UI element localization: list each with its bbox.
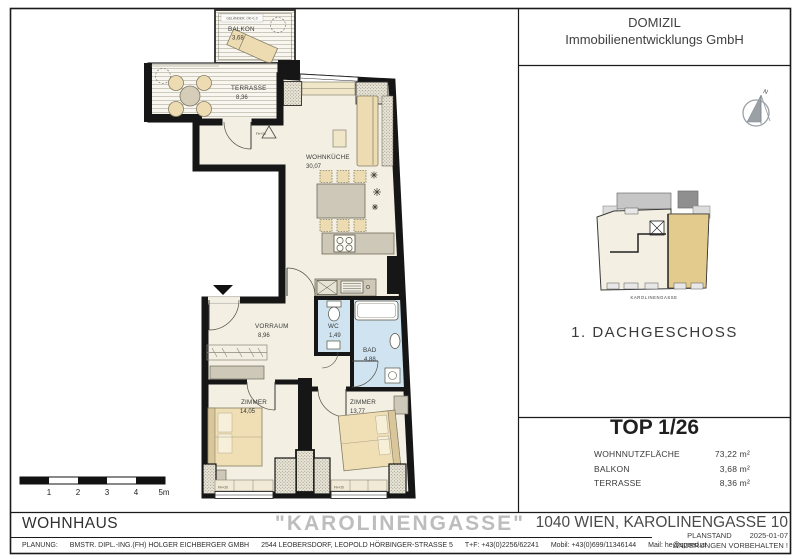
- unit-row-wohnnutzflaeche: WOHNNUTZFLÄCHE 73,22 m²: [594, 449, 750, 459]
- sideboard: [210, 366, 264, 379]
- toilet: [329, 307, 340, 321]
- unit-summary-table: WOHNNUTZFLÄCHE 73,22 m² BALKON 3,68 m² T…: [594, 449, 750, 493]
- unit-row-value: 3,68 m²: [720, 464, 750, 474]
- bed: [338, 410, 400, 471]
- scale-tick-3: 3: [105, 488, 110, 497]
- building-type: WOHNHAUS: [22, 515, 118, 533]
- scale-tick-1: 1: [47, 488, 52, 497]
- unit-row-value: 8,36 m²: [720, 478, 750, 488]
- sofa: [357, 96, 378, 166]
- highlighted-unit: [668, 214, 709, 288]
- scale-bar: 1 2 3 4 5m: [20, 477, 170, 497]
- unit-row-label: WOHNNUTZFLÄCHE: [594, 449, 680, 459]
- kitchen-island: [322, 233, 394, 254]
- room-area-wohnkueche: 30,07: [306, 164, 322, 170]
- bathroom: BAD 4,88: [352, 298, 406, 389]
- sink-counter: [315, 279, 376, 296]
- unit-row-value: 73,22 m²: [715, 449, 750, 459]
- plan-status-label: PLANSTAND: [687, 531, 731, 540]
- room-label-zimmer-1: ZIMMER: [241, 399, 267, 406]
- window-label-1: FH+20: [256, 132, 266, 136]
- overview-site-plan: KAROLINENGASSE: [597, 191, 710, 300]
- compass-icon: N: [743, 89, 770, 126]
- scale-tick-2: 2: [76, 488, 81, 497]
- entrance-arrow: [213, 285, 233, 295]
- washbasin: [390, 334, 400, 349]
- scale-tick-4: 4: [134, 488, 139, 497]
- footer-segment: BMSTR. DIPL.-ING.(FH) HOLGER EICHBERGER …: [70, 542, 249, 549]
- unit-row-terrasse: TERRASSE 8,36 m²: [594, 478, 750, 488]
- planner-footer: PLANUNG: BMSTR. DIPL.-ING.(FH) HOLGER EI…: [22, 542, 707, 549]
- room-label-wohnkueche: WOHNKÜCHE: [306, 153, 350, 161]
- room-area-wc: 1,49: [329, 333, 341, 339]
- floor-title: 1. DACHGESCHOSS: [519, 324, 790, 341]
- railing-note: GELÄNDER, OK+1.0: [226, 17, 257, 21]
- footer-segment: Mobil: +43(0)699/11346144: [551, 542, 636, 549]
- shaft: [296, 450, 314, 492]
- compass-north-label: N: [763, 89, 769, 96]
- terrace: TERRASSE 8,36: [144, 63, 278, 122]
- unit-row-label: TERRASSE: [594, 478, 641, 488]
- project-name: "KAROLINENGASSE": [210, 512, 590, 536]
- room-label-wc: WC: [328, 323, 339, 330]
- street-caption: KAROLINENGASSE: [630, 295, 677, 300]
- room-area-terrasse: 8,36: [236, 95, 248, 101]
- room-label-zimmer-2: ZIMMER: [350, 399, 376, 406]
- project-address: 1040 WIEN, KAROLINENGASSE 10: [536, 514, 788, 532]
- room-area-balkon: 3,68: [232, 36, 244, 42]
- room-label-bad: BAD: [363, 347, 377, 354]
- unit-row-balkon: BALKON 3,68 m²: [594, 464, 750, 474]
- footer-segment: 2544 LEOBERSDORF, LEOPOLD HÖRBINGER-STRA…: [261, 542, 453, 549]
- balcony: GELÄNDER, OK+1.0 BALKON 3,68: [215, 10, 295, 64]
- footer-segment: Mail: he@speed.at: [648, 542, 706, 549]
- plan-status-date: 2025-01-07: [750, 531, 788, 540]
- bathtub: [355, 301, 398, 320]
- company-name: DOMIZIL: [519, 15, 790, 32]
- window-label-2: FH+20: [218, 486, 228, 490]
- washing-machine: [385, 368, 400, 383]
- room-area-zimmer-2: 13,77: [350, 409, 366, 415]
- room-label-balkon: BALKON: [228, 26, 255, 33]
- dining-set: [317, 171, 366, 232]
- room-area-vorraum: 8,96: [258, 333, 270, 339]
- unit-title: TOP 1/26: [519, 416, 790, 440]
- unit-row-label: BALKON: [594, 464, 630, 474]
- footer-segment: PLANUNG:: [22, 542, 58, 549]
- plan-status: PLANSTAND 2025-01-07: [687, 531, 788, 540]
- room-label-vorraum: VORRAUM: [255, 323, 289, 330]
- footer-segment: T+F: +43(0)2256/62241: [465, 542, 539, 549]
- room-area-zimmer-1: 14,05: [240, 409, 256, 415]
- room-label-terrasse: TERRASSE: [231, 85, 267, 92]
- scale-tick-5: 5m: [158, 488, 169, 497]
- company-block: DOMIZIL Immobilienentwicklungs GmbH: [519, 15, 790, 49]
- room-area-bad: 4,88: [364, 357, 376, 363]
- wc-sink: [327, 341, 340, 349]
- plan-sheet: GELÄNDER, OK+1.0 BALKON 3,68 TERR: [0, 0, 800, 559]
- side-table: [333, 130, 346, 147]
- company-subtitle: Immobilienentwicklungs GmbH: [519, 32, 790, 49]
- window-label-3: FH+20: [334, 486, 344, 490]
